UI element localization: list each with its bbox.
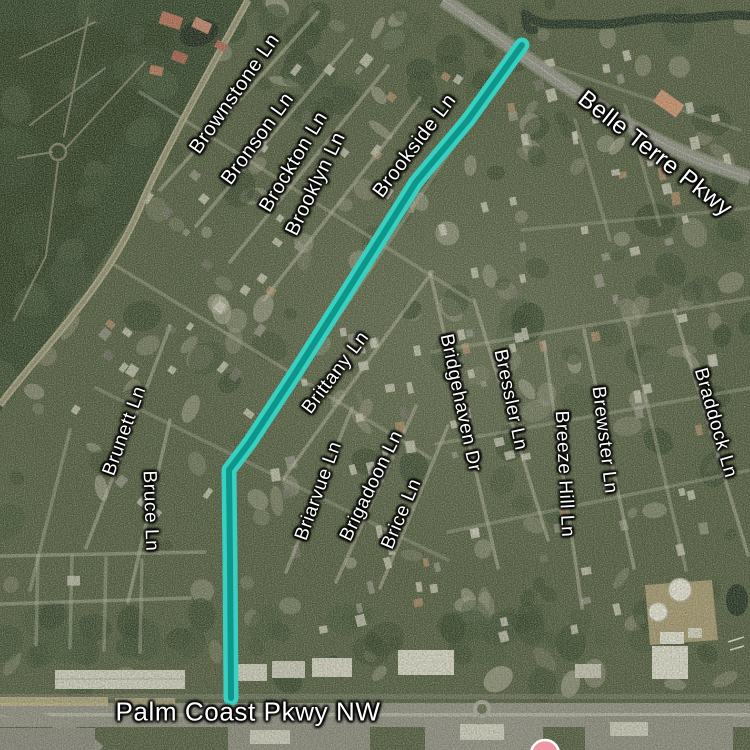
road-label-palm-coast-pkwy-nw: Palm Coast Pkwy NW xyxy=(115,697,380,728)
satellite-map-canvas[interactable]: Brownstone Ln Bronson Ln Brockton Ln Bro… xyxy=(0,0,750,750)
map-imagery xyxy=(0,0,750,750)
street-label-bruce-ln: Bruce Ln xyxy=(138,470,163,552)
